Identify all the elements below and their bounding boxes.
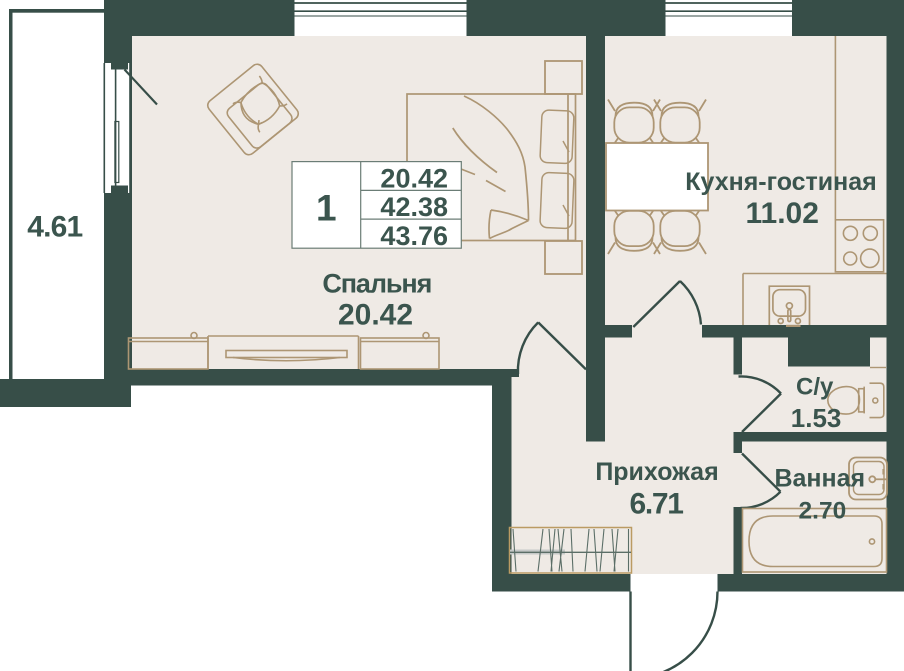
svg-text:С/у: С/у [796,374,834,401]
svg-text:20.42: 20.42 [338,299,413,332]
svg-text:6.71: 6.71 [629,488,683,521]
svg-text:43.76: 43.76 [380,221,448,251]
svg-text:Прихожая: Прихожая [595,458,718,486]
svg-text:11.02: 11.02 [745,197,818,230]
svg-text:1: 1 [316,188,337,229]
svg-text:Ванная: Ванная [774,465,865,493]
svg-text:4.61: 4.61 [27,211,82,244]
svg-text:20.42: 20.42 [380,163,448,193]
svg-text:2.70: 2.70 [799,498,847,525]
svg-text:Кухня-гостиная: Кухня-гостиная [685,168,877,196]
svg-text:1.53: 1.53 [791,403,842,433]
svg-text:Спальня: Спальня [322,268,431,298]
svg-text:42.38: 42.38 [380,192,448,222]
